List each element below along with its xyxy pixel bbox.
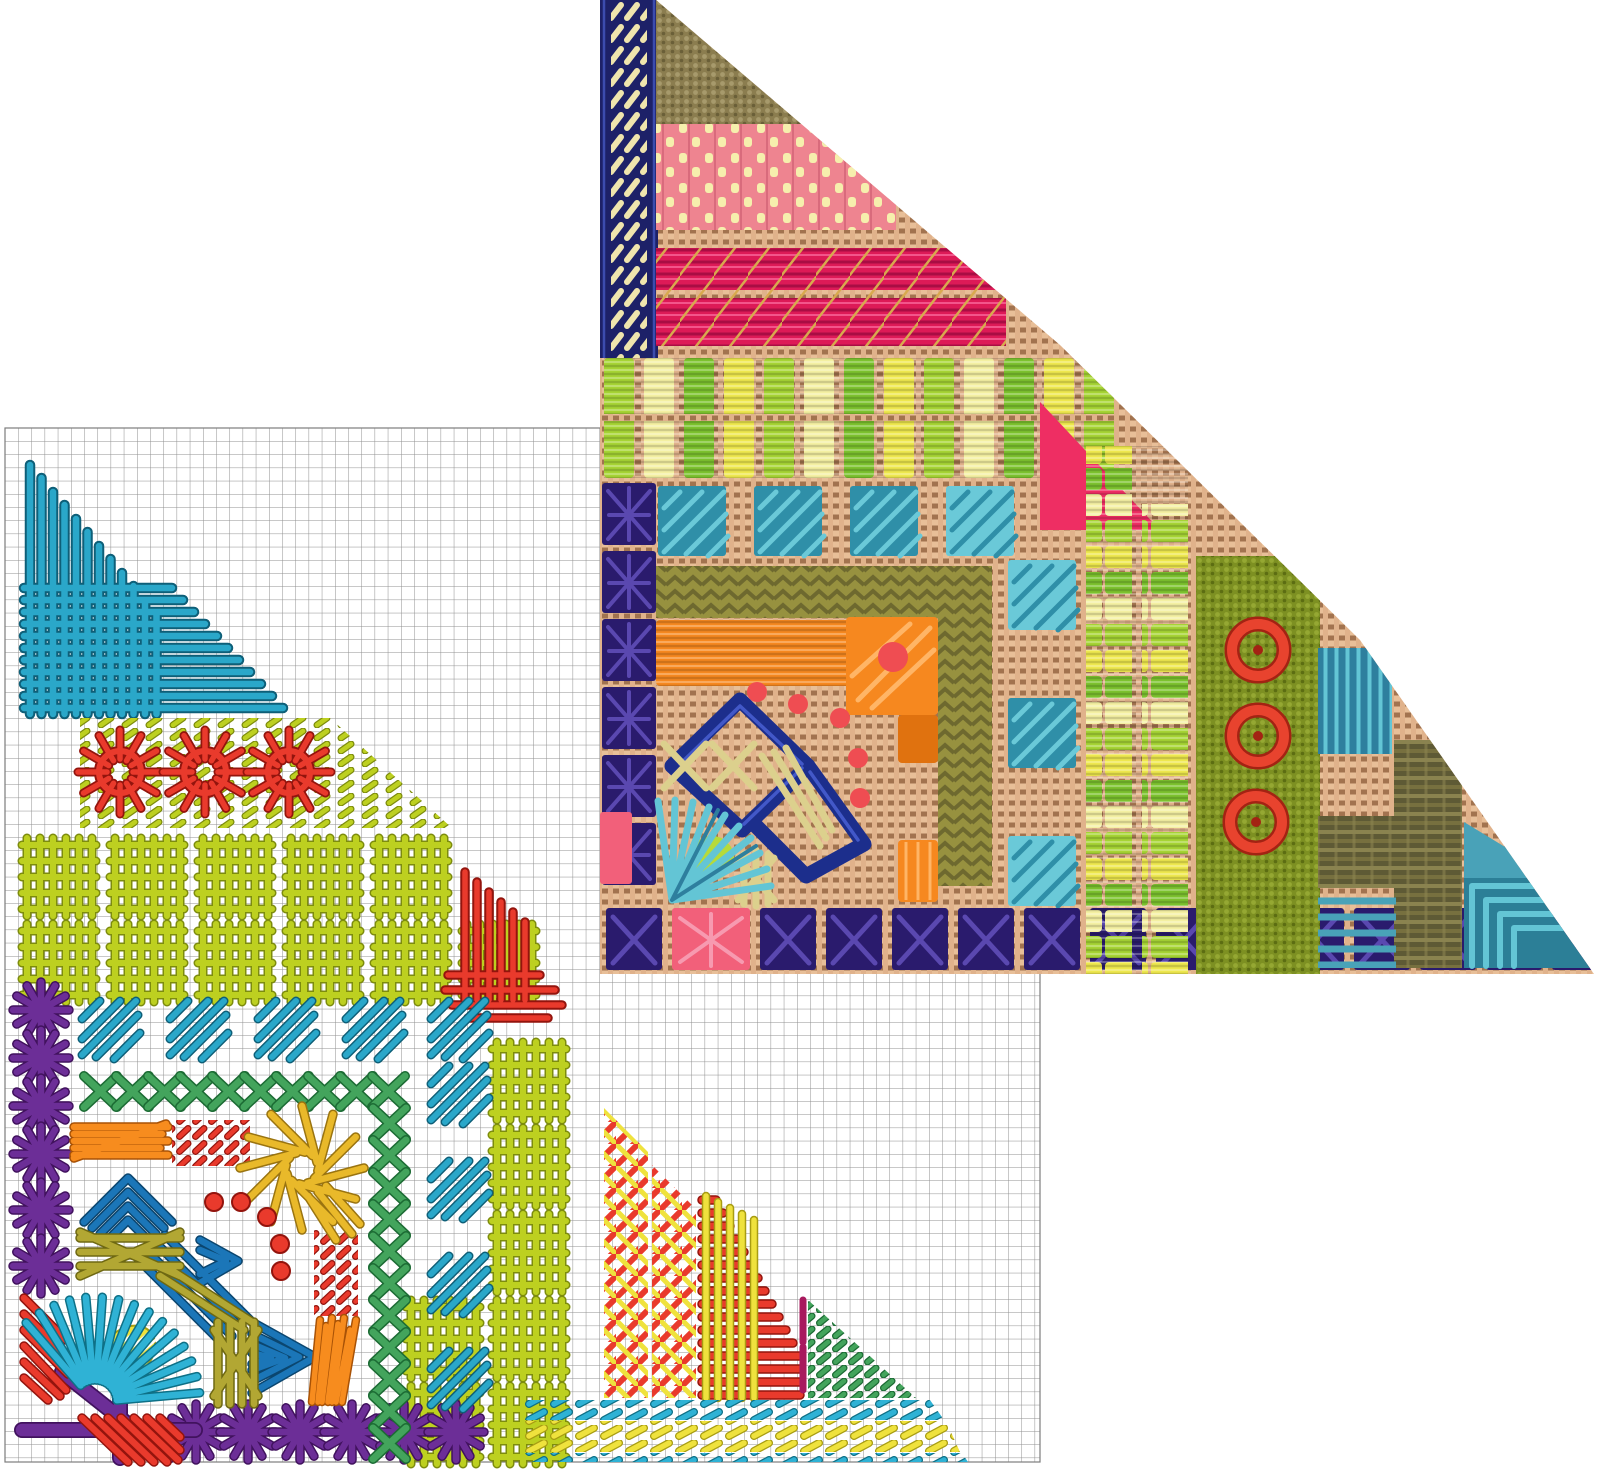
photo-salmon-woven-band — [656, 124, 896, 230]
sampler-composite — [0, 0, 1600, 1470]
chart-cyan-dash-row-bottom — [523, 1453, 968, 1462]
photo-teal-vertical-block — [1318, 648, 1392, 754]
chart-red-dash-field-a — [172, 1120, 250, 1166]
chart-cyan-dash-row-top — [523, 1400, 944, 1420]
chart-yellow-dash-rows — [523, 1421, 960, 1452]
photo-aqua-mitered-corner-square — [1464, 878, 1594, 968]
photo-pink-edge-block — [600, 812, 632, 884]
photo-teal-stripe-block — [1318, 890, 1396, 968]
photo-navy-herringbone-border — [600, 0, 658, 358]
photo-olive-tent-field — [1196, 556, 1320, 976]
photo-crimson-rows-band — [656, 248, 1006, 346]
page — [0, 0, 1600, 1470]
photo-brown-tent-block — [656, 0, 906, 124]
stitched-model-photo — [600, 0, 1600, 976]
chart-red-yellow-lattice-1 — [604, 1108, 648, 1398]
photo-lime-yellow-stacked-columns — [1086, 446, 1188, 976]
chart-orange-bar-block — [74, 1124, 168, 1158]
